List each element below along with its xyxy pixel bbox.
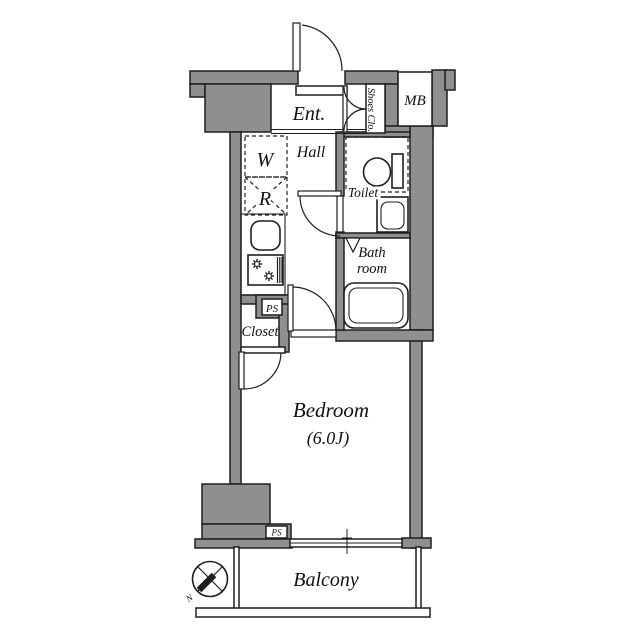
toilet-tank bbox=[392, 154, 403, 188]
wall-right-low bbox=[410, 330, 422, 548]
balcony-rail-right bbox=[416, 547, 421, 609]
wall-top-bar-left bbox=[190, 71, 298, 84]
wall-bottom-strip bbox=[195, 539, 292, 548]
stove-burner-icon bbox=[252, 259, 262, 269]
room-label-shoes-closet: Shoes Clo. bbox=[365, 88, 376, 132]
toilet-fixture bbox=[364, 158, 391, 186]
balcony-rail-bottom bbox=[196, 608, 430, 617]
floorplan-canvas: N Ent. Shoes Clo. MB Hall W R Toilet Bat… bbox=[0, 0, 640, 640]
stove-burner-icon bbox=[264, 271, 274, 281]
room-label-meter-box: MB bbox=[403, 93, 426, 109]
toilet-door bbox=[298, 191, 343, 236]
shoes-closet-doors bbox=[343, 86, 366, 132]
wall-bedroom-top-right bbox=[336, 330, 433, 341]
wall-shoes-right-strip bbox=[385, 84, 398, 126]
entrance-door-arc bbox=[302, 25, 342, 71]
appliance-label-refrigerator: R bbox=[258, 188, 271, 210]
wall-left bbox=[230, 132, 241, 484]
room-label-toilet: Toilet bbox=[348, 185, 380, 200]
room-label-hall: Hall bbox=[296, 144, 326, 161]
walls bbox=[190, 70, 455, 548]
room-label-bedroom-size: (6.0J) bbox=[307, 428, 349, 449]
entrance-sill bbox=[296, 86, 347, 95]
room-label-bath-line1: Bath bbox=[358, 245, 385, 261]
closet-door-arc bbox=[244, 353, 281, 389]
closet-door bbox=[239, 352, 281, 389]
entrance-door-leaf bbox=[293, 23, 300, 71]
kitchen-sink bbox=[251, 221, 280, 250]
room-label-closet: Closet bbox=[241, 324, 279, 340]
entrance-door bbox=[293, 23, 342, 71]
appliance-label-washer: W bbox=[257, 149, 276, 171]
wall-bottom-left-block bbox=[202, 484, 270, 524]
toilet-door-arc bbox=[300, 196, 340, 236]
label-pipe-space-upper: PS bbox=[265, 303, 279, 315]
wall-right-tab bbox=[445, 70, 455, 90]
wall-top-bar-right bbox=[345, 71, 398, 84]
compass-north-label: N bbox=[183, 592, 195, 605]
wall-top-left-block bbox=[205, 84, 271, 132]
bedroom-door bbox=[288, 285, 336, 337]
balcony-rail-left bbox=[234, 547, 239, 609]
label-pipe-space-lower: PS bbox=[271, 528, 282, 538]
wall-bath-left bbox=[336, 238, 344, 330]
room-label-bedroom: Bedroom bbox=[293, 398, 369, 422]
bathtub bbox=[344, 283, 408, 328]
wall-right-mid bbox=[410, 126, 433, 330]
closet-track bbox=[241, 347, 285, 353]
toilet-door-open-leaf bbox=[298, 191, 341, 196]
balcony-window bbox=[290, 529, 402, 554]
room-label-bath-line2: room bbox=[357, 261, 387, 277]
wall-toilet-bath-divider bbox=[336, 233, 410, 238]
compass-north-icon: N bbox=[183, 562, 227, 605]
room-label-entrance: Ent. bbox=[292, 103, 326, 125]
wall-toilet-left-upper bbox=[336, 132, 344, 196]
bedroom-door-arc bbox=[293, 287, 336, 330]
kitchen bbox=[241, 214, 285, 295]
room-label-balcony: Balcony bbox=[293, 569, 359, 591]
bedroom-door-closed-leaf bbox=[291, 330, 336, 337]
bathroom-fixtures bbox=[344, 283, 408, 328]
floorplan-drawing: N Ent. Shoes Clo. MB Hall W R Toilet Bat… bbox=[0, 0, 640, 640]
wall-top-left-tab bbox=[190, 84, 205, 97]
bedroom-door-open-leaf bbox=[288, 285, 293, 331]
toilet-door-closed-leaf bbox=[337, 196, 343, 232]
closet-door-open-leaf bbox=[239, 352, 244, 389]
